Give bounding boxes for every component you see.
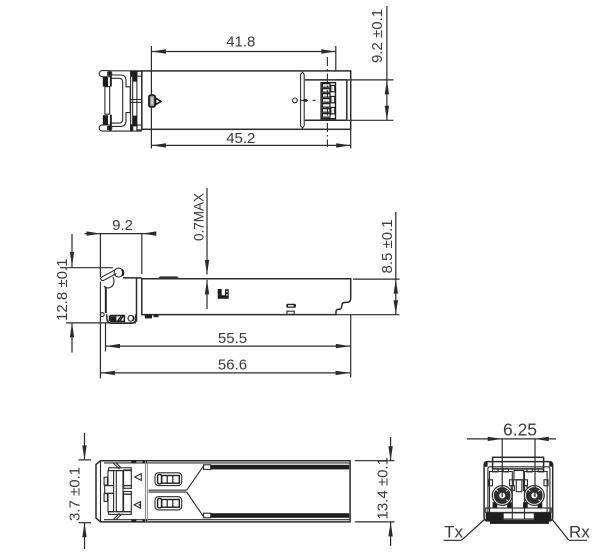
svg-text:9.2: 9.2 <box>112 217 133 234</box>
svg-text:0.7MAX: 0.7MAX <box>192 193 207 241</box>
svg-text:3.7 ±0.1: 3.7 ±0.1 <box>67 467 84 521</box>
svg-text:13.4 ±0.1: 13.4 ±0.1 <box>375 457 392 519</box>
svg-text:55.5: 55.5 <box>218 330 247 347</box>
svg-text:45.2: 45.2 <box>226 130 255 147</box>
svg-text:56.6: 56.6 <box>218 356 247 373</box>
svg-text:Tx: Tx <box>444 523 463 542</box>
svg-text:8.5 ±0.1: 8.5 ±0.1 <box>379 219 396 273</box>
svg-text:9.2 ±0.1: 9.2 ±0.1 <box>369 9 386 63</box>
svg-text:Rx: Rx <box>569 523 590 542</box>
svg-text:41.8: 41.8 <box>226 34 255 51</box>
svg-text:6.25: 6.25 <box>503 420 537 440</box>
